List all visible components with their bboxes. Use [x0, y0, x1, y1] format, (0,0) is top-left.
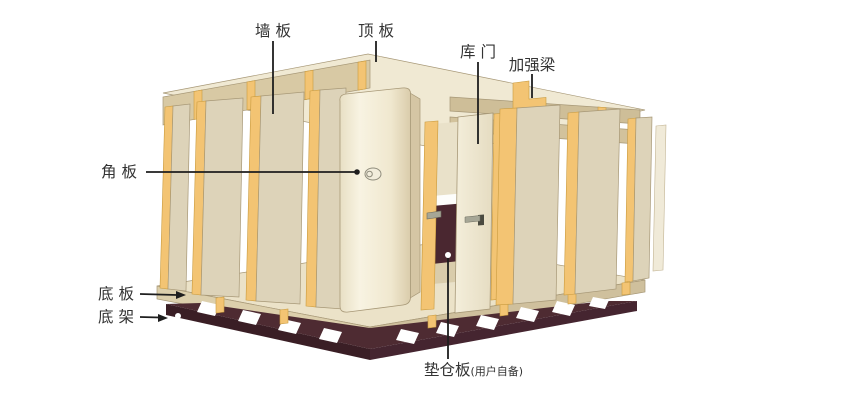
floor-connector-strip: [622, 282, 630, 295]
wall-panel-right-2: [564, 109, 620, 295]
corner-panel-emblem: [365, 168, 381, 180]
corner-panel: [340, 88, 411, 312]
diagram-canvas: 墙 板 顶 板 库 门 加强梁 角 板 底 板 底 架 垫仓板(用户自备): [0, 0, 849, 409]
panel-face: [575, 109, 620, 294]
bottom-frame-arrowhead: [158, 314, 168, 322]
leader-line-bottom-frame: [140, 317, 160, 318]
wall-panel-right-1: [496, 105, 560, 305]
label-corner-panel: 角 板: [101, 163, 137, 181]
label-wall-panel: 墙 板: [255, 22, 291, 40]
leader-line-bottom-panel: [140, 294, 177, 295]
panel-face: [201, 98, 243, 297]
corner-panel-side-face: [410, 93, 420, 298]
wall-panel-left-2: [192, 98, 243, 297]
corner-panel-pointer-dot: [354, 169, 360, 175]
pallet-board-pointer-dot: [445, 252, 451, 258]
label-pallet-board: 垫仓板(用户自备): [424, 361, 523, 379]
floor-connector-strip: [280, 309, 288, 324]
wall-panel-right-sliver: [653, 125, 666, 271]
label-reinforcement-beam: 加强梁: [509, 56, 556, 74]
roof-joint-strip: [358, 61, 366, 90]
label-pallet-board-main: 垫仓板: [424, 361, 471, 379]
label-bottom-panel: 底 板: [98, 285, 134, 303]
panel-face: [513, 105, 560, 304]
wall-panel-left-1: [160, 104, 190, 291]
label-bottom-frame: 底 架: [98, 308, 134, 326]
floor-connector-strip: [216, 297, 224, 313]
cold-room-assembly-diagram: 墙 板 顶 板 库 门 加强梁 角 板 底 板 底 架 垫仓板(用户自备): [0, 0, 849, 409]
label-door: 库 门: [460, 43, 496, 61]
door-handle-lever: [465, 216, 480, 223]
door-panel: [455, 113, 493, 313]
bottom-frame-pointer-dot: [175, 313, 181, 319]
label-pallet-board-note: (用户自备): [471, 364, 524, 378]
panel-face: [633, 117, 652, 281]
floor-connector-strip: [428, 315, 436, 328]
wall-panel-right-3: [625, 117, 652, 282]
panel-face: [256, 92, 304, 304]
wall-panel-left-3: [246, 92, 304, 304]
label-top-panel: 顶 板: [358, 22, 394, 40]
